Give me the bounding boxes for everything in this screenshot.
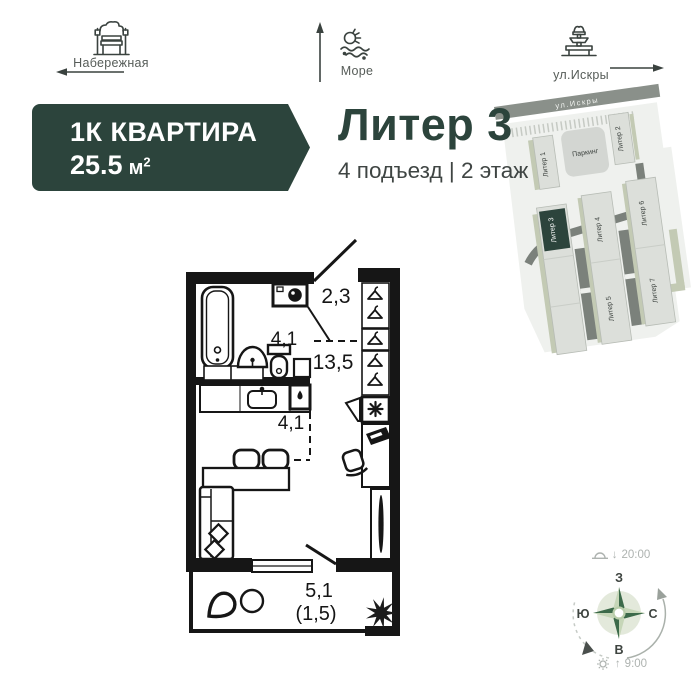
- compass-center: [614, 608, 625, 619]
- wall-segment: [336, 558, 400, 572]
- vent-shaft: [294, 359, 310, 377]
- fountain-icon: [562, 27, 596, 56]
- sunset-time: 20:00: [621, 549, 650, 561]
- balcony-table-icon: [241, 590, 263, 612]
- entrance-door: [314, 240, 356, 281]
- compass-east-label: В: [614, 643, 623, 657]
- sunrise-time-row: ↑ 9:00: [576, 658, 666, 670]
- sunrise-icon: [595, 658, 611, 670]
- site-plan: ул.Искры Литер 1 Паркинг Литер 2: [494, 83, 698, 358]
- bar-stool-icon: [234, 450, 288, 469]
- sunset-arrow: ↓: [612, 549, 618, 561]
- apartment-plan-page: { "landmarks": { "embankment": { "label"…: [0, 0, 700, 700]
- balcony-wall: [392, 572, 400, 630]
- embankment-icon: [94, 22, 129, 55]
- sunrise-time: 9:00: [625, 658, 647, 670]
- sofa-icon: [200, 487, 233, 559]
- sunset-time-row: ↓ 20:00: [576, 549, 666, 561]
- cloud-icon: [100, 22, 123, 31]
- balcony-area-label: 5,1: [305, 580, 333, 602]
- balcony-wall: [189, 572, 193, 632]
- sea-label: Море: [297, 64, 417, 78]
- wall-segment: [186, 272, 196, 572]
- bathtub-icon: [202, 287, 233, 368]
- sun-path-arrowhead: [657, 588, 667, 600]
- floor-plan: 2,3 13,5 4,1 4,1 5,1 (1,5): [186, 240, 400, 636]
- balcony-area-reduced-label: (1,5): [295, 603, 336, 625]
- compass: З С В Ю: [573, 571, 667, 658]
- bathroom-door: [308, 307, 330, 341]
- sea-icon: [341, 29, 369, 59]
- bathroom-area-label: 4,1: [271, 329, 297, 350]
- apartment-area: 25.5м2: [70, 150, 310, 181]
- apartment-badge: 1К КВАРТИРА 25.5м2: [32, 104, 310, 191]
- compass-west-label: З: [615, 571, 623, 585]
- room-area-label: 13,5: [313, 351, 354, 374]
- apartment-type: 1К КВАРТИРА: [70, 117, 310, 148]
- hallway-area-label: 2,3: [321, 285, 350, 308]
- sunrise-arrow: ↑: [615, 658, 621, 670]
- entrance-floor-subtitle: 4 подъезд | 2 этаж: [338, 158, 528, 184]
- fridge-asterisk-icon: [369, 402, 383, 416]
- building-title: Литер 3: [338, 99, 513, 151]
- compass-north-label: С: [648, 607, 657, 621]
- bathroom-sink-icon: [238, 347, 267, 367]
- embankment-label: Набережная: [51, 56, 171, 70]
- wall-segment: [186, 272, 314, 284]
- balcony-wall: [189, 629, 369, 633]
- kitchen-area-label: 4,1: [278, 413, 304, 434]
- washing-machine-icon: [273, 284, 307, 306]
- parking-lot[interactable]: Паркинг: [560, 126, 610, 178]
- hanging-chair-icon: [203, 589, 240, 626]
- cabinet-door: [346, 398, 360, 421]
- street-label: ул.Искры: [521, 68, 641, 82]
- sunset-icon: [592, 550, 608, 560]
- closet-icon: [371, 489, 391, 559]
- window: [252, 560, 312, 572]
- compass-south-label: Ю: [577, 607, 590, 621]
